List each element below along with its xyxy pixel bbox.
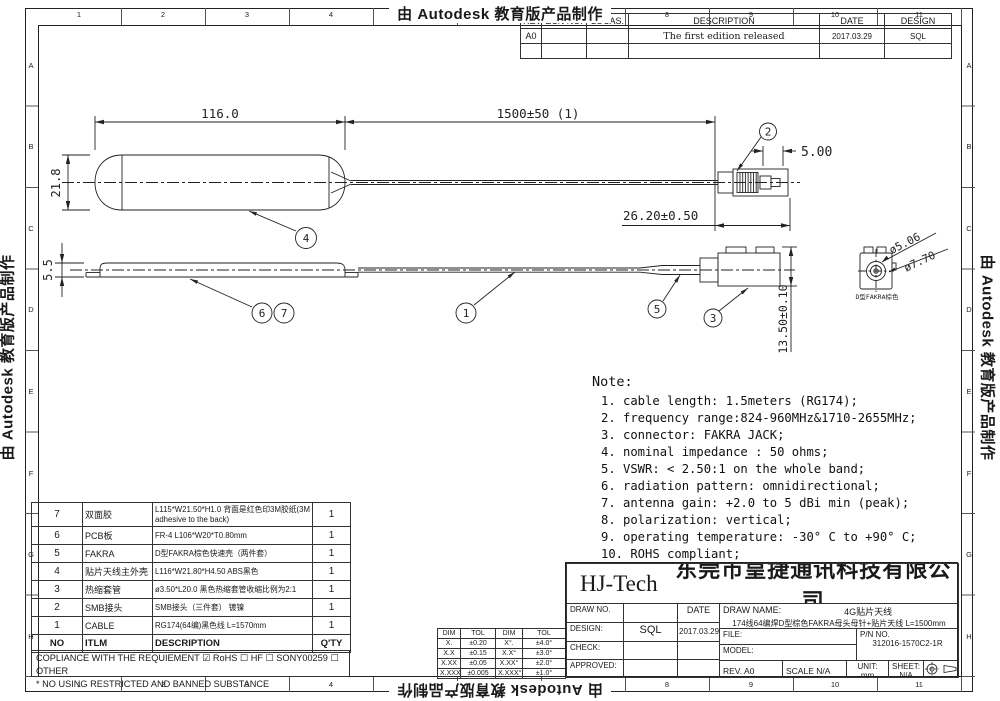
part-item: CABLE	[83, 617, 153, 635]
part-qty: 1	[313, 617, 351, 635]
sheet-cell: SHEET: N/A	[888, 660, 924, 678]
approved-date	[677, 659, 720, 678]
draw-no-value	[623, 603, 678, 623]
part-item: SMB接头	[83, 599, 153, 617]
part-qty: 1	[313, 599, 351, 617]
sheet-label: SHEET:	[892, 662, 920, 671]
part-no: 4	[32, 563, 83, 581]
part-row: 4 贴片天线主外壳 L116*W21.80*H4.50 ABS黑色 1	[32, 563, 351, 581]
tolerance-row: X. ±0.20 X°. ±4.0°	[438, 639, 566, 649]
tolerance-table: DIM TOL DIM TOL X. ±0.20 X°. ±4.0° X.X ±…	[437, 628, 566, 679]
part-no: 2	[32, 599, 83, 617]
part-item: 双面胶	[83, 503, 153, 527]
note-item: 5. VSWR: < 2.50:1 on the whole band;	[592, 461, 917, 478]
tol-cell: DIM	[496, 629, 523, 639]
part-item: FAKRA	[83, 545, 153, 563]
unit-label: UNIT:	[850, 662, 885, 671]
projection-symbol-cell	[923, 660, 959, 678]
part-row: 2 SMB接头 SMB接头（三件套） 镀镍 1	[32, 599, 351, 617]
dim-cable-length: 1500±50 (1)	[497, 106, 580, 121]
part-desc: L115*W21.50*H1.0 背面是红色印3M胶纸(3M adhesive …	[153, 503, 313, 527]
balloon-6: 6	[259, 307, 266, 320]
watermark-bottom: 由 Autodesk 教育版产品制作	[150, 680, 850, 701]
balloon-7: 7	[281, 307, 288, 320]
part-desc: FR-4 L106*W20*T0.80mm	[153, 527, 313, 545]
design-date: 2017.03.29	[677, 622, 720, 642]
approved-label: APPROVED:	[566, 659, 624, 678]
rev-cell: REV. A0	[719, 660, 783, 678]
part-no: 5	[32, 545, 83, 563]
part-qty: 1	[313, 581, 351, 599]
tol-cell: ±0.20	[461, 639, 496, 649]
note-item: 8. polarization: vertical;	[592, 512, 917, 529]
part-qty: 1	[313, 503, 351, 527]
scale-cell: SCALE N/A	[782, 660, 847, 678]
pn-cell: P/N NO. 312016-1570C2-1R	[856, 628, 959, 661]
dim-fakra-body-dia: ø7.70	[902, 249, 938, 275]
unit-cell: UNIT: mm	[846, 660, 889, 678]
tol-cell: ±4.0°	[523, 639, 566, 649]
tol-cell: X.X	[438, 649, 461, 659]
dimension-lines	[55, 116, 797, 352]
dim-body-width: 21.8	[49, 169, 63, 198]
tol-cell: ±0.005	[461, 669, 496, 679]
part-item: PCB板	[83, 527, 153, 545]
part-row: 5 FAKRA D型FAKRA棕色快速壳（两件套） 1	[32, 545, 351, 563]
tolerance-header-row: DIM TOL DIM TOL	[438, 629, 566, 639]
design-value: SQL	[623, 622, 678, 642]
tol-cell: X.XX	[438, 659, 461, 669]
tol-cell: X.XX°	[496, 659, 523, 669]
part-row: 3 热缩套管 ø3.50*L20.0 黑色热缩套管收缩比例为2:1 1	[32, 581, 351, 599]
tol-cell: ±0.05	[461, 659, 496, 669]
part-item: 贴片天线主外壳	[83, 563, 153, 581]
dimension-arrowheads	[60, 120, 793, 286]
part-no: 7	[32, 503, 83, 527]
design-label: DESIGN:	[566, 622, 624, 642]
title-block: HJ-Tech 东莞市皇捷通讯科技有限公司 DRAW NO. DATE DESI…	[565, 562, 958, 677]
model-label: MODEL:	[719, 644, 857, 661]
parts-table: 7 双面胶 L115*W21.50*H1.0 背面是红色印3M胶纸(3M adh…	[31, 502, 351, 653]
company-logo-text: HJ-Tech	[570, 571, 672, 597]
draw-no-label: DRAW NO.	[566, 603, 624, 623]
antenna-body-top-view	[62, 155, 800, 210]
part-row: 7 双面胶 L115*W21.50*H1.0 背面是红色印3M胶纸(3M adh…	[32, 503, 351, 527]
drawing-sheet: 1 2 3 4 5 6 7 8 9 10 11 1 2 3 4 5 6 7 8 …	[0, 0, 1000, 701]
antenna-side-view	[70, 263, 795, 277]
check-value	[623, 641, 678, 660]
dim-body-height: 5.5	[41, 259, 55, 281]
note-item: 7. antenna gain: +2.0 to 5 dBi min (peak…	[592, 495, 917, 512]
part-qty: 1	[313, 545, 351, 563]
part-desc: D型FAKRA棕色快速壳（两件套）	[153, 545, 313, 563]
company-row: HJ-Tech 东莞市皇捷通讯科技有限公司	[566, 563, 959, 604]
balloon-4: 4	[303, 232, 310, 245]
dim-smb-tip: 5.00	[801, 145, 832, 160]
part-row: 6 PCB板 FR-4 L106*W20*T0.80mm 1	[32, 527, 351, 545]
part-row: 1 CABLE RG174(64编)黑色线 L=1570mm 1	[32, 617, 351, 635]
part-no: 3	[32, 581, 83, 599]
pn-label: P/N NO.	[860, 630, 955, 639]
part-no: 1	[32, 617, 83, 635]
detail-label: D型FAKRA棕色	[856, 292, 899, 301]
compliance-box: COPLIANCE WITH THE REQUIEMENT ☑ RoHS ☐ H…	[31, 650, 350, 677]
part-desc: ø3.50*L20.0 黑色热缩套管收缩比例为2:1	[153, 581, 313, 599]
watermark-left: 由 Autodesk 教育版产品制作	[0, 8, 18, 701]
tol-cell: TOL	[461, 629, 496, 639]
tol-cell: X.XXX°	[496, 669, 523, 679]
note-item: 2. frequency range:824-960MHz&1710-2655M…	[592, 410, 917, 427]
tol-cell: ±2.0°	[523, 659, 566, 669]
notes-block: Note: 1. cable length: 1.5meters (RG174)…	[592, 374, 917, 563]
tol-cell: X°.	[496, 639, 523, 649]
part-desc: RG174(64编)黑色线 L=1570mm	[153, 617, 313, 635]
draw-name-value: 4G贴片天线	[781, 605, 955, 618]
sheet-value: N/A	[892, 671, 920, 678]
pn-value: 312016-1570C2-1R	[860, 639, 955, 648]
date-col-header: DATE	[677, 603, 720, 623]
check-label: CHECK:	[566, 641, 624, 660]
balloon-3: 3	[710, 312, 717, 325]
balloon-circles	[252, 123, 777, 327]
balloon-2: 2	[765, 126, 772, 139]
watermark-top: 由 Autodesk 教育版产品制作	[150, 3, 850, 24]
tol-cell: X.XXX	[438, 669, 461, 679]
company-name: 东莞市皇捷通讯科技有限公司	[672, 563, 955, 604]
note-item: 1. cable length: 1.5meters (RG174);	[592, 393, 917, 410]
third-angle-projection-icon	[924, 661, 958, 677]
tol-cell: X.	[438, 639, 461, 649]
tol-cell: TOL	[523, 629, 566, 639]
part-no: 6	[32, 527, 83, 545]
note-item: 4. nominal impedance : 50 ohms;	[592, 444, 917, 461]
notes-title: Note:	[592, 374, 917, 391]
tol-cell: ±3.0°	[523, 649, 566, 659]
dim-body-length: 116.0	[201, 106, 239, 121]
tolerance-row: X.XXX ±0.005 X.XXX° ±1.0°	[438, 669, 566, 679]
note-item: 10. ROHS compliant;	[592, 546, 917, 563]
dimension-texts: 116.0 1500±50 (1) 5.00 26.20±0.50 21.8 5…	[41, 106, 938, 354]
check-date	[677, 641, 720, 660]
note-item: 6. radiation pattern: omnidirectional;	[592, 478, 917, 495]
balloon-5: 5	[654, 303, 661, 316]
part-qty: 1	[313, 527, 351, 545]
part-desc: SMB接头（三件套） 镀镍	[153, 599, 313, 617]
tolerance-row: X.XX ±0.05 X.XX° ±2.0°	[438, 659, 566, 669]
draw-name-cell: DRAW NAME: 4G贴片天线 174线64编焊D型棕色FAKRA母头母针+…	[719, 603, 959, 629]
unit-value: mm	[850, 671, 885, 678]
part-item: 热缩套管	[83, 581, 153, 599]
part-desc: L116*W21.80*H4.50 ABS黑色	[153, 563, 313, 581]
draw-name-label: DRAW NAME:	[723, 605, 781, 618]
approved-value	[623, 659, 678, 678]
file-label: FILE:	[719, 628, 857, 645]
compliance-line: COPLIANCE WITH THE REQUIEMENT ☑ RoHS ☐ H…	[36, 652, 345, 678]
balloon-leaders	[190, 137, 761, 311]
tol-cell: DIM	[438, 629, 461, 639]
dim-smb-length: 26.20±0.50	[623, 208, 698, 223]
note-item: 9. operating temperature: -30° C to +90°…	[592, 529, 917, 546]
balloon-1: 1	[463, 307, 470, 320]
tol-cell: ±0.15	[461, 649, 496, 659]
dim-fakra-height: 13.50±0.10	[776, 284, 790, 353]
tol-cell: ±1.0°	[523, 669, 566, 679]
tolerance-row: X.X ±0.15 X.X° ±3.0°	[438, 649, 566, 659]
dim-fakra-pin-dia: ø5.06	[887, 230, 922, 257]
part-qty: 1	[313, 563, 351, 581]
tol-cell: X.X°	[496, 649, 523, 659]
fakra-connector-side-view	[700, 247, 780, 286]
watermark-right: 由 Autodesk 教育版产品制作	[978, 8, 999, 701]
note-item: 3. connector: FAKRA JACK;	[592, 427, 917, 444]
